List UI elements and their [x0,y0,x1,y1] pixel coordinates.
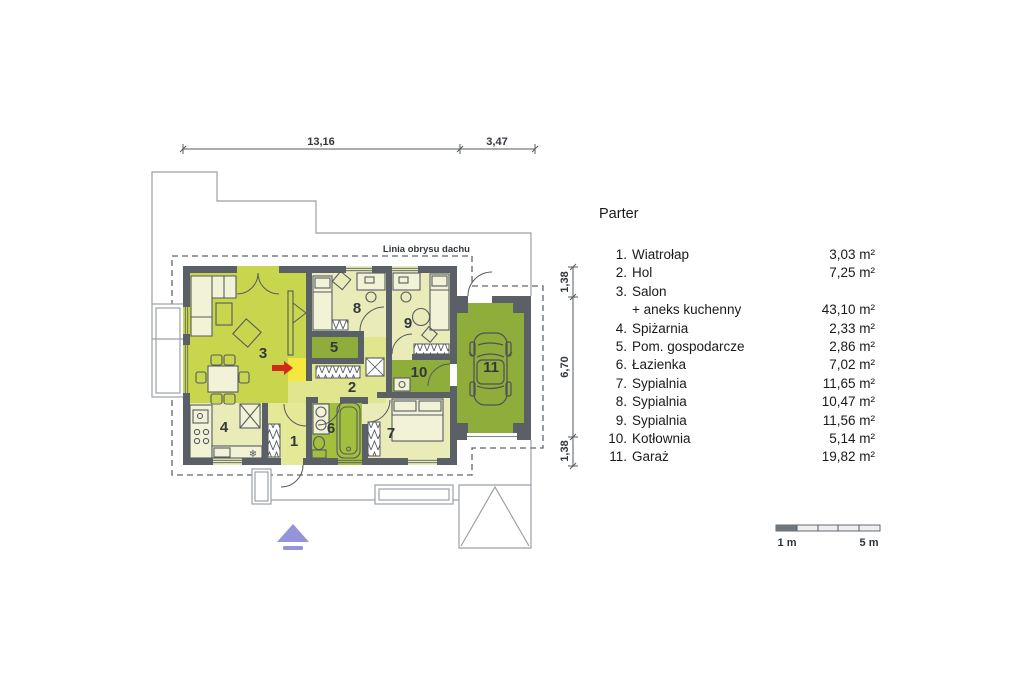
dimension-top: 13,16 3,47 [180,136,538,154]
bay-window-outline [152,304,184,397]
entrance-door-gap [281,458,303,465]
room-label-10: 10 [411,364,428,381]
floor-plan-page: ❄ [0,0,1024,683]
legend-row: 2. Hol 7,25 m² [597,264,875,282]
wardrobe-room1 [268,424,280,457]
freezer-icon: ❄ [249,449,257,460]
dim-right-mid: 6,70 [559,356,571,377]
legend-row: 11. Garaż 19,82 m² [597,448,875,466]
room-label-5: 5 [330,339,338,356]
scale-bar: 1 m 5 m [776,525,880,549]
scale-max-label: 5 m [860,537,879,549]
room-label-9: 9 [404,315,412,332]
window-room8-top [346,266,372,273]
dim-top-right: 3,47 [486,136,507,148]
legend-title: Parter [599,206,875,222]
window-left-lower [183,345,190,393]
legend-row: 6. Łazienka 7,02 m² [597,356,875,374]
window-salon-door-top [237,266,279,273]
dim-right-top: 1,38 [559,271,571,292]
dim-top-left: 13,16 [307,136,335,148]
window-kitchen-bottom [213,458,242,465]
shaft-box [366,358,384,376]
bed-room9 [430,274,449,330]
wardrobe-room7 [368,422,380,456]
legend-row: 5. Pom. gospodarcze 2,86 m² [597,338,875,356]
legend-row: 9. Sypialnia 11,56 m² [597,412,875,430]
room-label-3: 3 [259,345,267,362]
room-label-1: 1 [290,433,298,450]
entrance-arrow-icon [277,524,309,550]
door-garage-passage [468,272,492,296]
driveway-gable-lines [461,487,529,546]
window-bath-bottom [338,458,362,465]
legend-row: + aneks kuchenny 43,10 m² [597,301,875,319]
wardrobe-room9 [414,344,449,354]
bed-room8 [313,276,332,330]
room-legend: Parter 1. Wiatrołap 3,03 m² 2. Hol 7,25 … [597,206,875,467]
pantry-cabinet [240,404,260,428]
legend-row: 7. Sypialnia 11,65 m² [597,375,875,393]
room-label-8: 8 [353,300,361,317]
legend-row: 8. Sypialnia 10,47 m² [597,393,875,411]
legend-row: 10. Kotłownia 5,14 m² [597,430,875,448]
roof-outline-label: Linia obrysu dachu [383,244,470,255]
window-room7-bottom [408,458,437,465]
door-entrance [281,465,303,487]
window-room9-top [392,266,418,273]
room-label-7: 7 [387,425,395,442]
boiler [394,378,410,391]
dim-right-bottom: 1,38 [559,440,571,461]
terrace [375,485,453,504]
wardrobe-hall-closet [316,366,360,378]
scale-min-label: 1 m [778,537,797,549]
legend-row: 4. Spiżarnia 2,33 m² [597,320,875,338]
room-label-11: 11 [483,359,499,376]
legend-row: 3. Salon [597,283,875,301]
legend-rows: 1. Wiatrołap 3,03 m² 2. Hol 7,25 m² 3. S… [597,246,875,467]
bed-room7 [392,399,443,441]
window-left-upper [183,307,190,334]
dimension-right: 1,38 6,70 1,38 [559,264,578,469]
room-label-2: 2 [348,379,356,396]
garage-vehicle-door [467,433,517,440]
room-label-4: 4 [220,419,229,436]
legend-row: 1. Wiatrołap 3,03 m² [597,246,875,264]
room-2-hol-fill-a [288,381,386,403]
room-label-6: 6 [327,420,335,437]
